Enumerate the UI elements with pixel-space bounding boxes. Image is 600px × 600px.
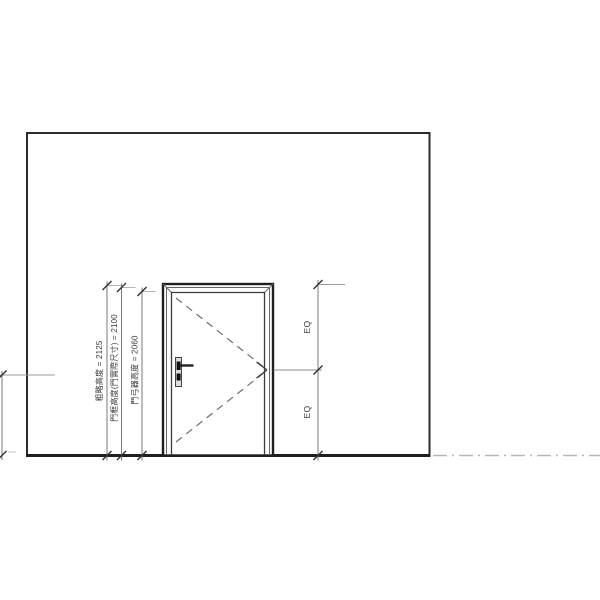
door-elevation-drawing: 粗略高度 = 2125 門框高度(門實際尺寸) = 2100 門弓器高度 = 2…: [0, 0, 600, 600]
eq-label-bottom: EQ: [302, 405, 312, 418]
dim-label-frame-height: 門框高度(門實際尺寸) = 2100: [109, 314, 119, 422]
drawing-canvas: 粗略高度 = 2125 門框高度(門實際尺寸) = 2100 門弓器高度 = 2…: [0, 0, 600, 600]
left-edge-dim-ticks: [0, 371, 7, 461]
dim-extension-stubs-top: [107, 286, 156, 292]
dim-label-rough-height: 粗略高度 = 2125: [94, 340, 104, 401]
eq-dimension: EQ EQ: [274, 280, 346, 461]
dim-label-closer-height: 門弓器高度 = 2060: [130, 335, 140, 405]
height-dimensions: 粗略高度 = 2125 門框高度(門實際尺寸) = 2100 門弓器高度 = 2…: [94, 281, 156, 461]
lock-cylinder: [177, 374, 181, 381]
door: [163, 284, 273, 456]
eq-label-top: EQ: [302, 320, 312, 333]
